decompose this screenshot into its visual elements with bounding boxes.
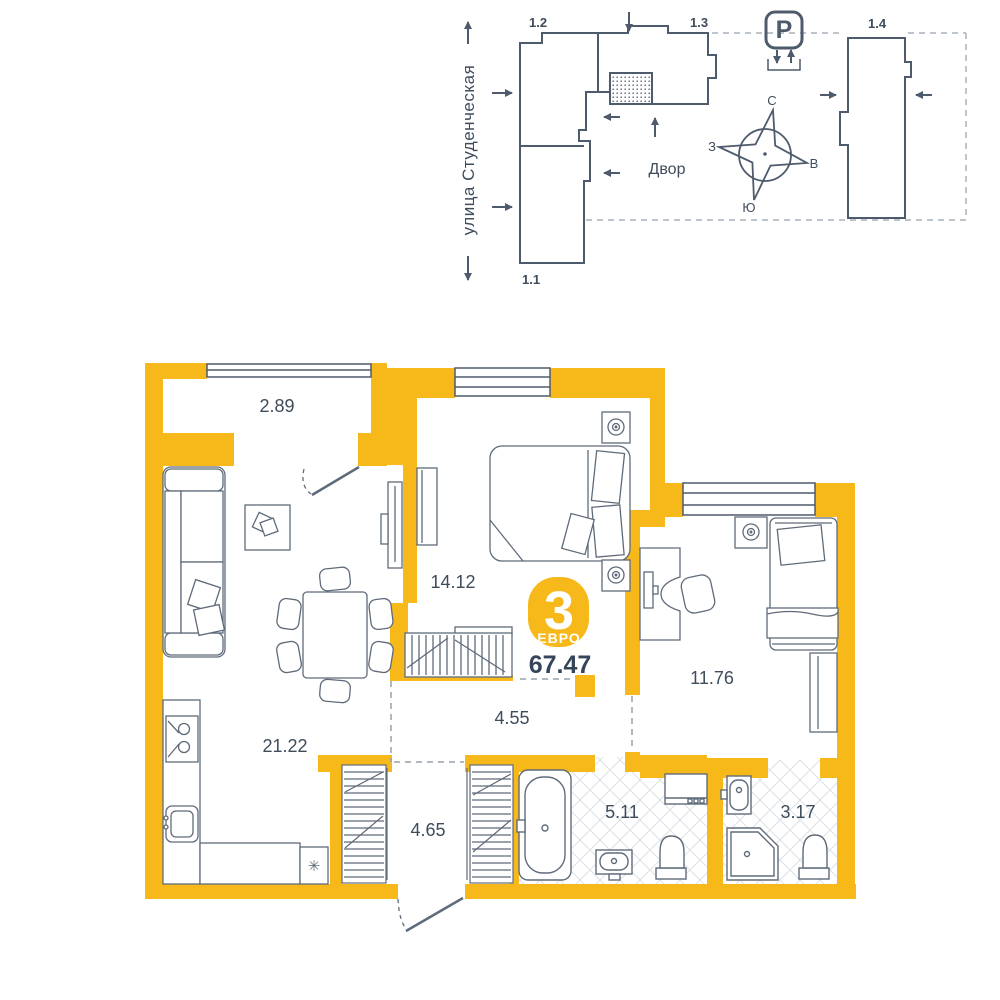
room-area-bedroom: 14.12	[430, 572, 475, 592]
bedroom2-furniture	[640, 517, 838, 732]
built-in-wardrobe	[342, 765, 387, 883]
building-label-11: 1.1	[522, 272, 540, 287]
entrance-arrows	[492, 12, 932, 207]
highlighted-unit-location	[610, 73, 652, 104]
balcony-door	[303, 467, 359, 495]
room-area-bedroom2: 11.76	[690, 668, 734, 688]
building-label-14: 1.4	[868, 16, 887, 31]
building-outline-14	[840, 38, 911, 218]
coffee-table	[245, 505, 290, 550]
courtyard-label: Двор	[649, 161, 686, 178]
built-in-wardrobe	[467, 765, 513, 883]
room-area-hallway: 4.55	[494, 708, 529, 728]
building-label-12: 1.2	[529, 15, 547, 30]
bedroom2-window	[683, 483, 815, 515]
bathtub	[517, 770, 571, 880]
parking-icon: P	[766, 12, 802, 70]
floor-plan-page: улица Студенческая P	[0, 0, 1000, 1000]
cabinet	[810, 653, 837, 732]
compass-icon: С В Ю З	[708, 93, 818, 215]
building-outline-13	[598, 26, 716, 104]
nightstand-with-lamp	[735, 517, 767, 548]
desk-chair	[680, 573, 717, 614]
compass-north: С	[767, 93, 776, 108]
dining-table	[276, 566, 395, 703]
bedroom-window	[455, 368, 550, 396]
badge-layout-type: ЕВРО	[537, 630, 581, 646]
nightstand-with-lamp	[602, 560, 630, 591]
room-area-kitchen-living: 21.22	[262, 736, 307, 756]
desk	[640, 548, 680, 640]
washing-machine	[665, 774, 707, 804]
room-area-shower-room: 3.17	[780, 802, 815, 822]
total-area-label: 67.47	[529, 651, 592, 679]
room-area-entrance-hall: 4.65	[410, 820, 445, 840]
building-label-13: 1.3	[690, 15, 708, 30]
street-label: улица Студенческая	[459, 65, 478, 236]
apartment-badge: 3 ЕВРО 67.47	[528, 577, 591, 679]
floor-plan-drawing: улица Студенческая P	[0, 0, 1000, 1000]
compass-west: З	[708, 139, 716, 154]
single-bed	[767, 518, 838, 650]
room-area-bathroom: 5.11	[605, 802, 639, 822]
site-plan: улица Студенческая P	[459, 12, 966, 287]
kitchen-sink	[164, 806, 198, 842]
building-outline-12-11	[520, 33, 598, 263]
double-bed	[490, 446, 630, 561]
compass-south: Ю	[742, 200, 755, 215]
dresser	[417, 468, 437, 545]
room-area-balcony: 2.89	[259, 396, 294, 416]
entrance-door	[398, 898, 463, 931]
tv-unit	[381, 482, 402, 568]
parking-letter: P	[776, 16, 793, 44]
compass-east: В	[810, 156, 819, 171]
fridge-symbol: ✳	[308, 858, 321, 875]
balcony-window	[207, 364, 371, 377]
bedroom-furniture	[405, 412, 630, 677]
sofa	[163, 467, 225, 657]
nightstand-with-lamp	[602, 412, 630, 443]
stove	[166, 716, 198, 762]
wardrobe	[405, 627, 512, 677]
